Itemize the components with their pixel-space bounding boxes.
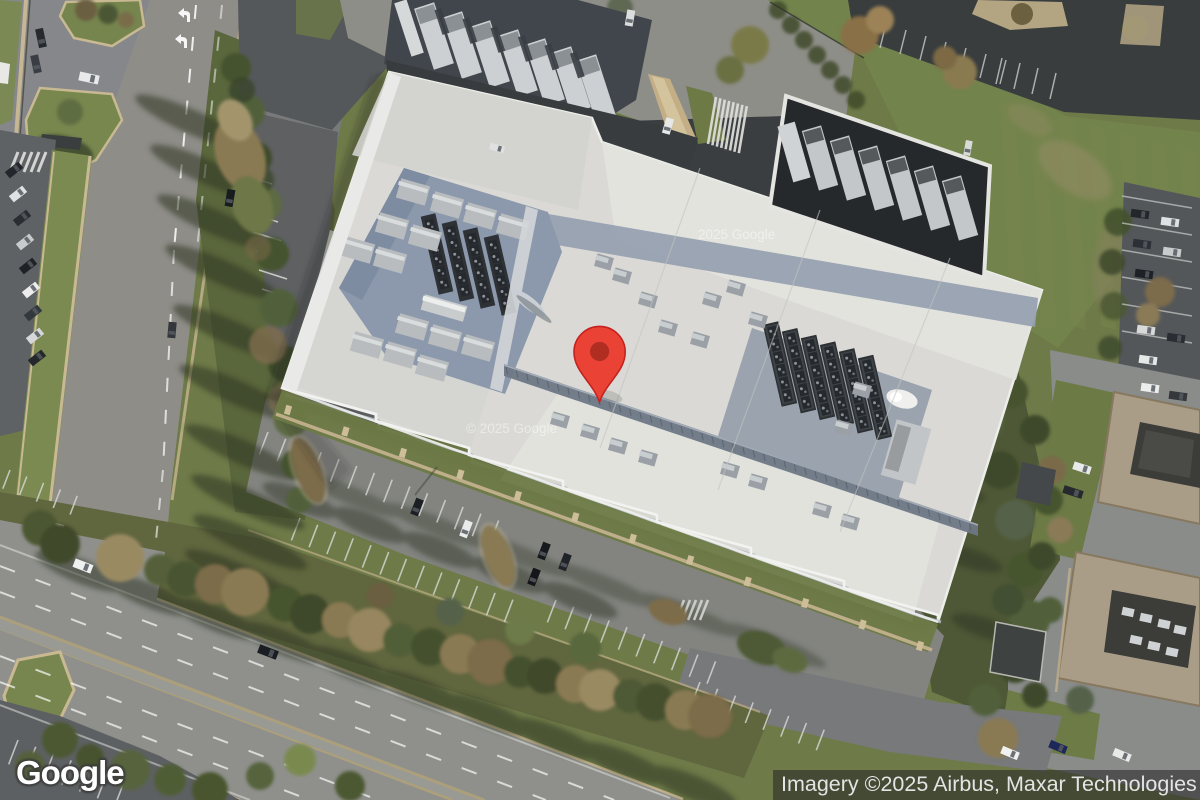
svg-text:© 2025 Google: © 2025 Google: [466, 421, 557, 436]
svg-text:2025 Google: 2025 Google: [698, 227, 775, 242]
svg-text:Imagery ©2025 Airbus, Maxar Te: Imagery ©2025 Airbus, Maxar Technologies: [781, 772, 1197, 796]
svg-text:Google: Google: [16, 754, 124, 791]
